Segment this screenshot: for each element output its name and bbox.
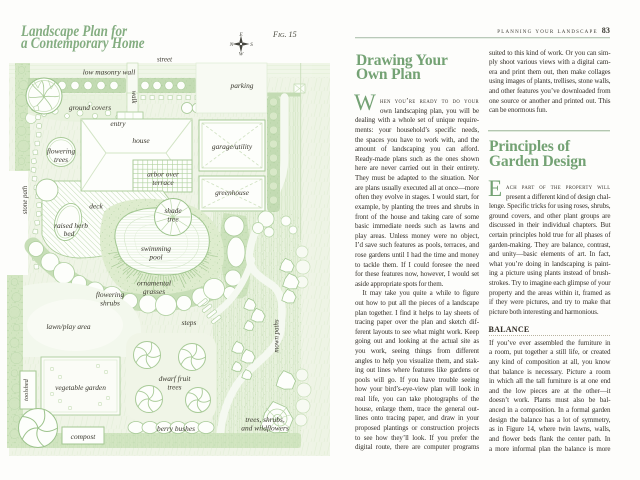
svg-text:shrubs: shrubs xyxy=(100,299,120,308)
svg-text:low masonry wall: low masonry wall xyxy=(83,68,136,77)
svg-text:compost: compost xyxy=(71,432,97,441)
svg-text:ground covers: ground covers xyxy=(69,103,111,112)
svg-text:W: W xyxy=(239,52,244,58)
svg-text:terrace: terrace xyxy=(152,178,174,187)
svg-text:steps: steps xyxy=(182,318,197,327)
svg-text:berry bushes: berry bushes xyxy=(157,424,195,433)
svg-text:S: S xyxy=(250,42,253,48)
svg-text:N: N xyxy=(229,42,234,48)
svg-text:house: house xyxy=(132,136,150,145)
svg-text:trees: trees xyxy=(54,155,68,164)
svg-text:walk: walk xyxy=(130,91,137,105)
svg-text:lawn/play area: lawn/play area xyxy=(46,322,91,331)
svg-text:tree: tree xyxy=(167,215,179,224)
svg-text:pool: pool xyxy=(148,253,162,262)
svg-text:trees: trees xyxy=(167,383,181,392)
svg-text:mown paths: mown paths xyxy=(274,319,281,352)
svg-text:street: street xyxy=(157,57,173,64)
svg-text:and wildflowers: and wildflowers xyxy=(241,424,289,433)
svg-text:entry: entry xyxy=(110,119,126,128)
svg-text:garage/utility: garage/utility xyxy=(212,142,253,151)
svg-text:stone path: stone path xyxy=(22,185,29,214)
svg-text:greenhouse: greenhouse xyxy=(215,188,250,197)
svg-text:toolshed: toolshed xyxy=(23,378,30,400)
svg-text:parking: parking xyxy=(230,81,254,90)
svg-text:bed: bed xyxy=(64,229,75,238)
svg-text:vegetable garden: vegetable garden xyxy=(55,383,106,392)
svg-text:E: E xyxy=(238,32,243,38)
svg-text:deck: deck xyxy=(89,202,103,211)
svg-text:grasses: grasses xyxy=(143,287,165,296)
